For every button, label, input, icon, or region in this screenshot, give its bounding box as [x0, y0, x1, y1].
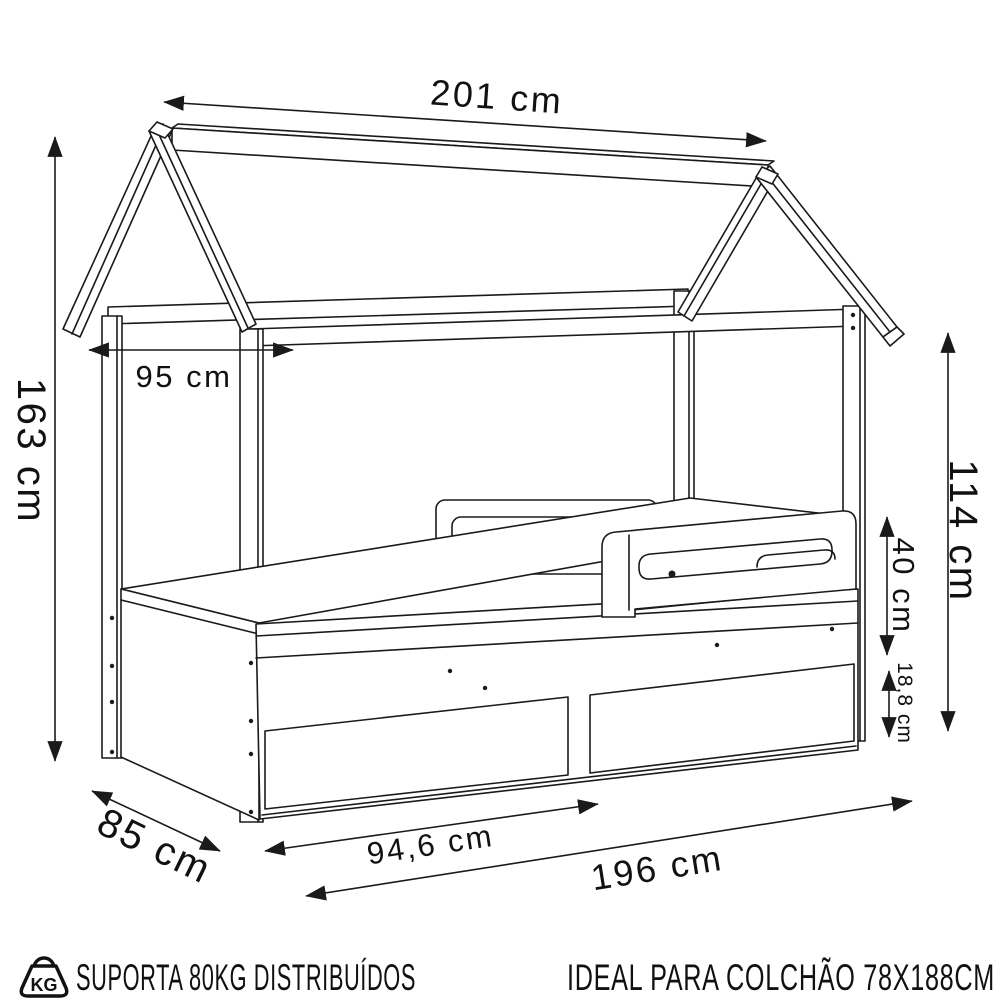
weight-capacity-text: SUPORTA 80KG DISTRIBUÍDOS	[76, 957, 416, 998]
house-bed-technical-diagram: 201 cm 95 cm 163 cm 114 cm 40 cm 18,8 cm…	[0, 0, 1000, 1000]
left-rear-post	[102, 316, 122, 758]
dim-right-height-label: 114 cm	[941, 459, 985, 602]
guard-rail-hole	[669, 571, 676, 578]
dim-right-height: 114 cm	[941, 333, 985, 731]
dim-drawer-front-height: 18,8 cm	[889, 662, 916, 744]
dim-left-height-label: 163 cm	[9, 378, 53, 524]
house-bed-drawing	[63, 122, 904, 822]
dim-drawer-width-label: 94,6 cm	[365, 818, 497, 872]
mattress-recommendation-text: IDEAL PARA COLCHÃO 78X188CM	[567, 957, 995, 998]
dim-inner-width-label: 95 cm	[136, 359, 233, 394]
technical-diagram-page: 201 cm 95 cm 163 cm 114 cm 40 cm 18,8 cm…	[0, 0, 1000, 1000]
dim-total-width-label: 201 cm	[429, 71, 565, 121]
dim-drawer-front-height-label: 18,8 cm	[893, 662, 916, 744]
dim-depth-label: 85 cm	[90, 800, 218, 893]
dim-guard-rail-height-label: 40 cm	[886, 538, 921, 635]
dim-guard-rail-height: 40 cm	[886, 517, 921, 655]
footer: KG SUPORTA 80KG DISTRIBUÍDOS IDEAL PARA …	[21, 957, 995, 998]
dim-base-length-label: 196 cm	[588, 837, 726, 898]
dim-drawer-width: 94,6 cm	[265, 804, 598, 871]
dim-left-height: 163 cm	[9, 137, 55, 761]
dim-depth: 85 cm	[90, 791, 220, 893]
ridge-beam	[172, 124, 774, 187]
headboard-panel	[121, 589, 259, 820]
right-gable-left-rafter	[678, 168, 776, 321]
kg-weight-icon: KG	[21, 958, 67, 996]
kg-badge-text: KG	[31, 975, 58, 995]
